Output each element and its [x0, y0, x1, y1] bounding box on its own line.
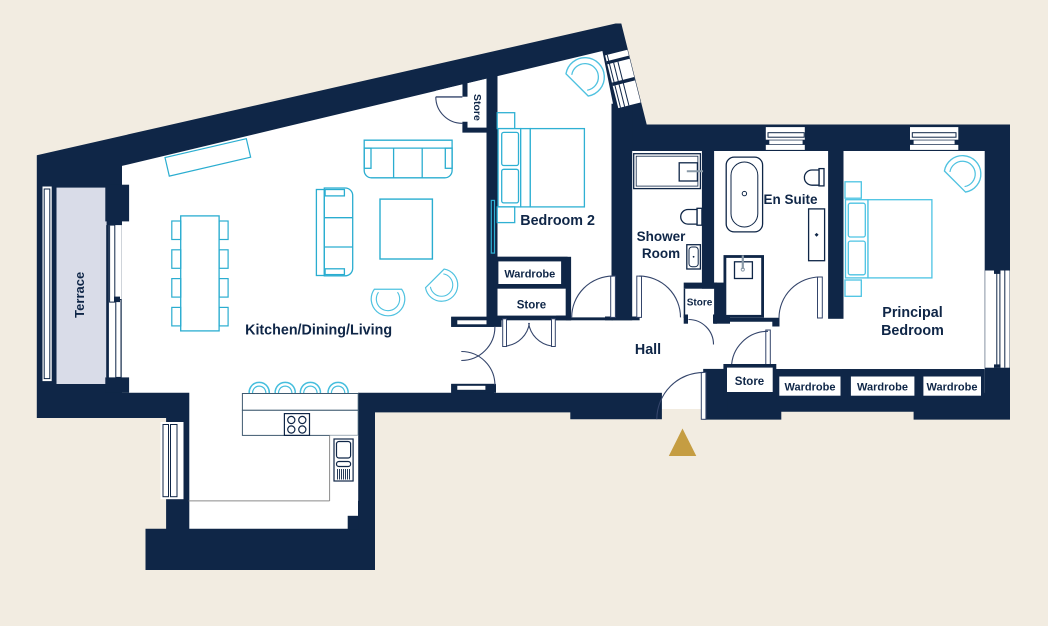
- svg-text:Principal: Principal: [882, 305, 942, 321]
- svg-text:Bedroom 2: Bedroom 2: [520, 213, 595, 229]
- svg-text:Store: Store: [471, 94, 483, 121]
- svg-text:En Suite: En Suite: [763, 192, 817, 207]
- svg-text:Kitchen/Dining/Living: Kitchen/Dining/Living: [245, 323, 392, 339]
- svg-text:Hall: Hall: [635, 342, 661, 358]
- svg-text:Bedroom: Bedroom: [881, 323, 944, 339]
- svg-text:Wardrobe: Wardrobe: [504, 269, 555, 281]
- svg-text:Store: Store: [517, 299, 546, 311]
- svg-text:Room: Room: [642, 246, 680, 261]
- svg-text:Terrace: Terrace: [72, 272, 87, 318]
- svg-text:Store: Store: [735, 376, 764, 388]
- svg-text:Store: Store: [687, 297, 713, 308]
- svg-text:Wardrobe: Wardrobe: [927, 382, 978, 394]
- svg-text:Wardrobe: Wardrobe: [857, 382, 908, 394]
- svg-text:Wardrobe: Wardrobe: [785, 382, 836, 394]
- svg-text:Shower: Shower: [637, 229, 687, 244]
